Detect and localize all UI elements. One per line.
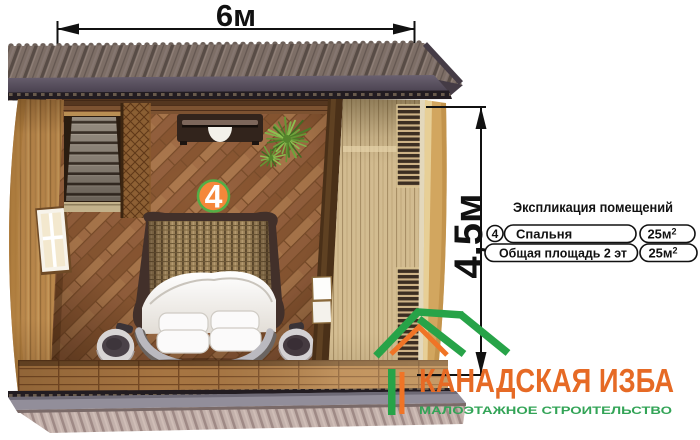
svg-text:4: 4 — [205, 179, 223, 215]
svg-text:Спальня: Спальня — [516, 227, 572, 242]
svg-text:4,5м: 4,5м — [447, 193, 491, 278]
svg-text:МАЛОЭТАЖНОЕ СТРОИТЕЛЬСТВО: МАЛОЭТАЖНОЕ СТРОИТЕЛЬСТВО — [419, 405, 673, 417]
svg-text:4: 4 — [492, 227, 499, 241]
svg-text:Экспликация помещений: Экспликация помещений — [513, 199, 673, 215]
svg-text:Общая площадь 2 эт: Общая площадь 2 эт — [499, 246, 627, 261]
svg-text:КАНАДСКАЯ ИЗБА: КАНАДСКАЯ ИЗБА — [419, 362, 674, 399]
